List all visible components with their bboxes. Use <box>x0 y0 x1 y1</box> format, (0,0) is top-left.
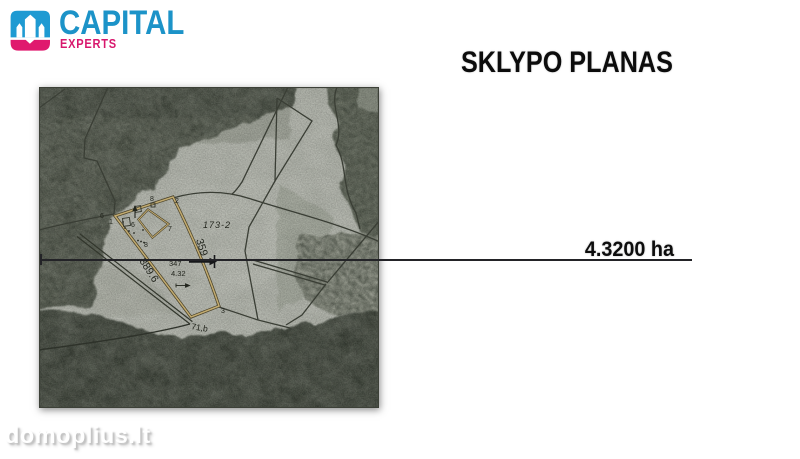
svg-text:7: 7 <box>168 226 172 233</box>
svg-text:8: 8 <box>144 242 148 249</box>
svg-text:1: 1 <box>109 219 113 226</box>
svg-text:6: 6 <box>131 222 135 229</box>
svg-text:8: 8 <box>150 196 154 203</box>
svg-text:4.32: 4.32 <box>171 269 186 278</box>
svg-text:173-2: 173-2 <box>203 220 231 230</box>
svg-text:3: 3 <box>221 308 225 315</box>
svg-text:6: 6 <box>100 213 104 220</box>
svg-text:2: 2 <box>175 198 179 205</box>
